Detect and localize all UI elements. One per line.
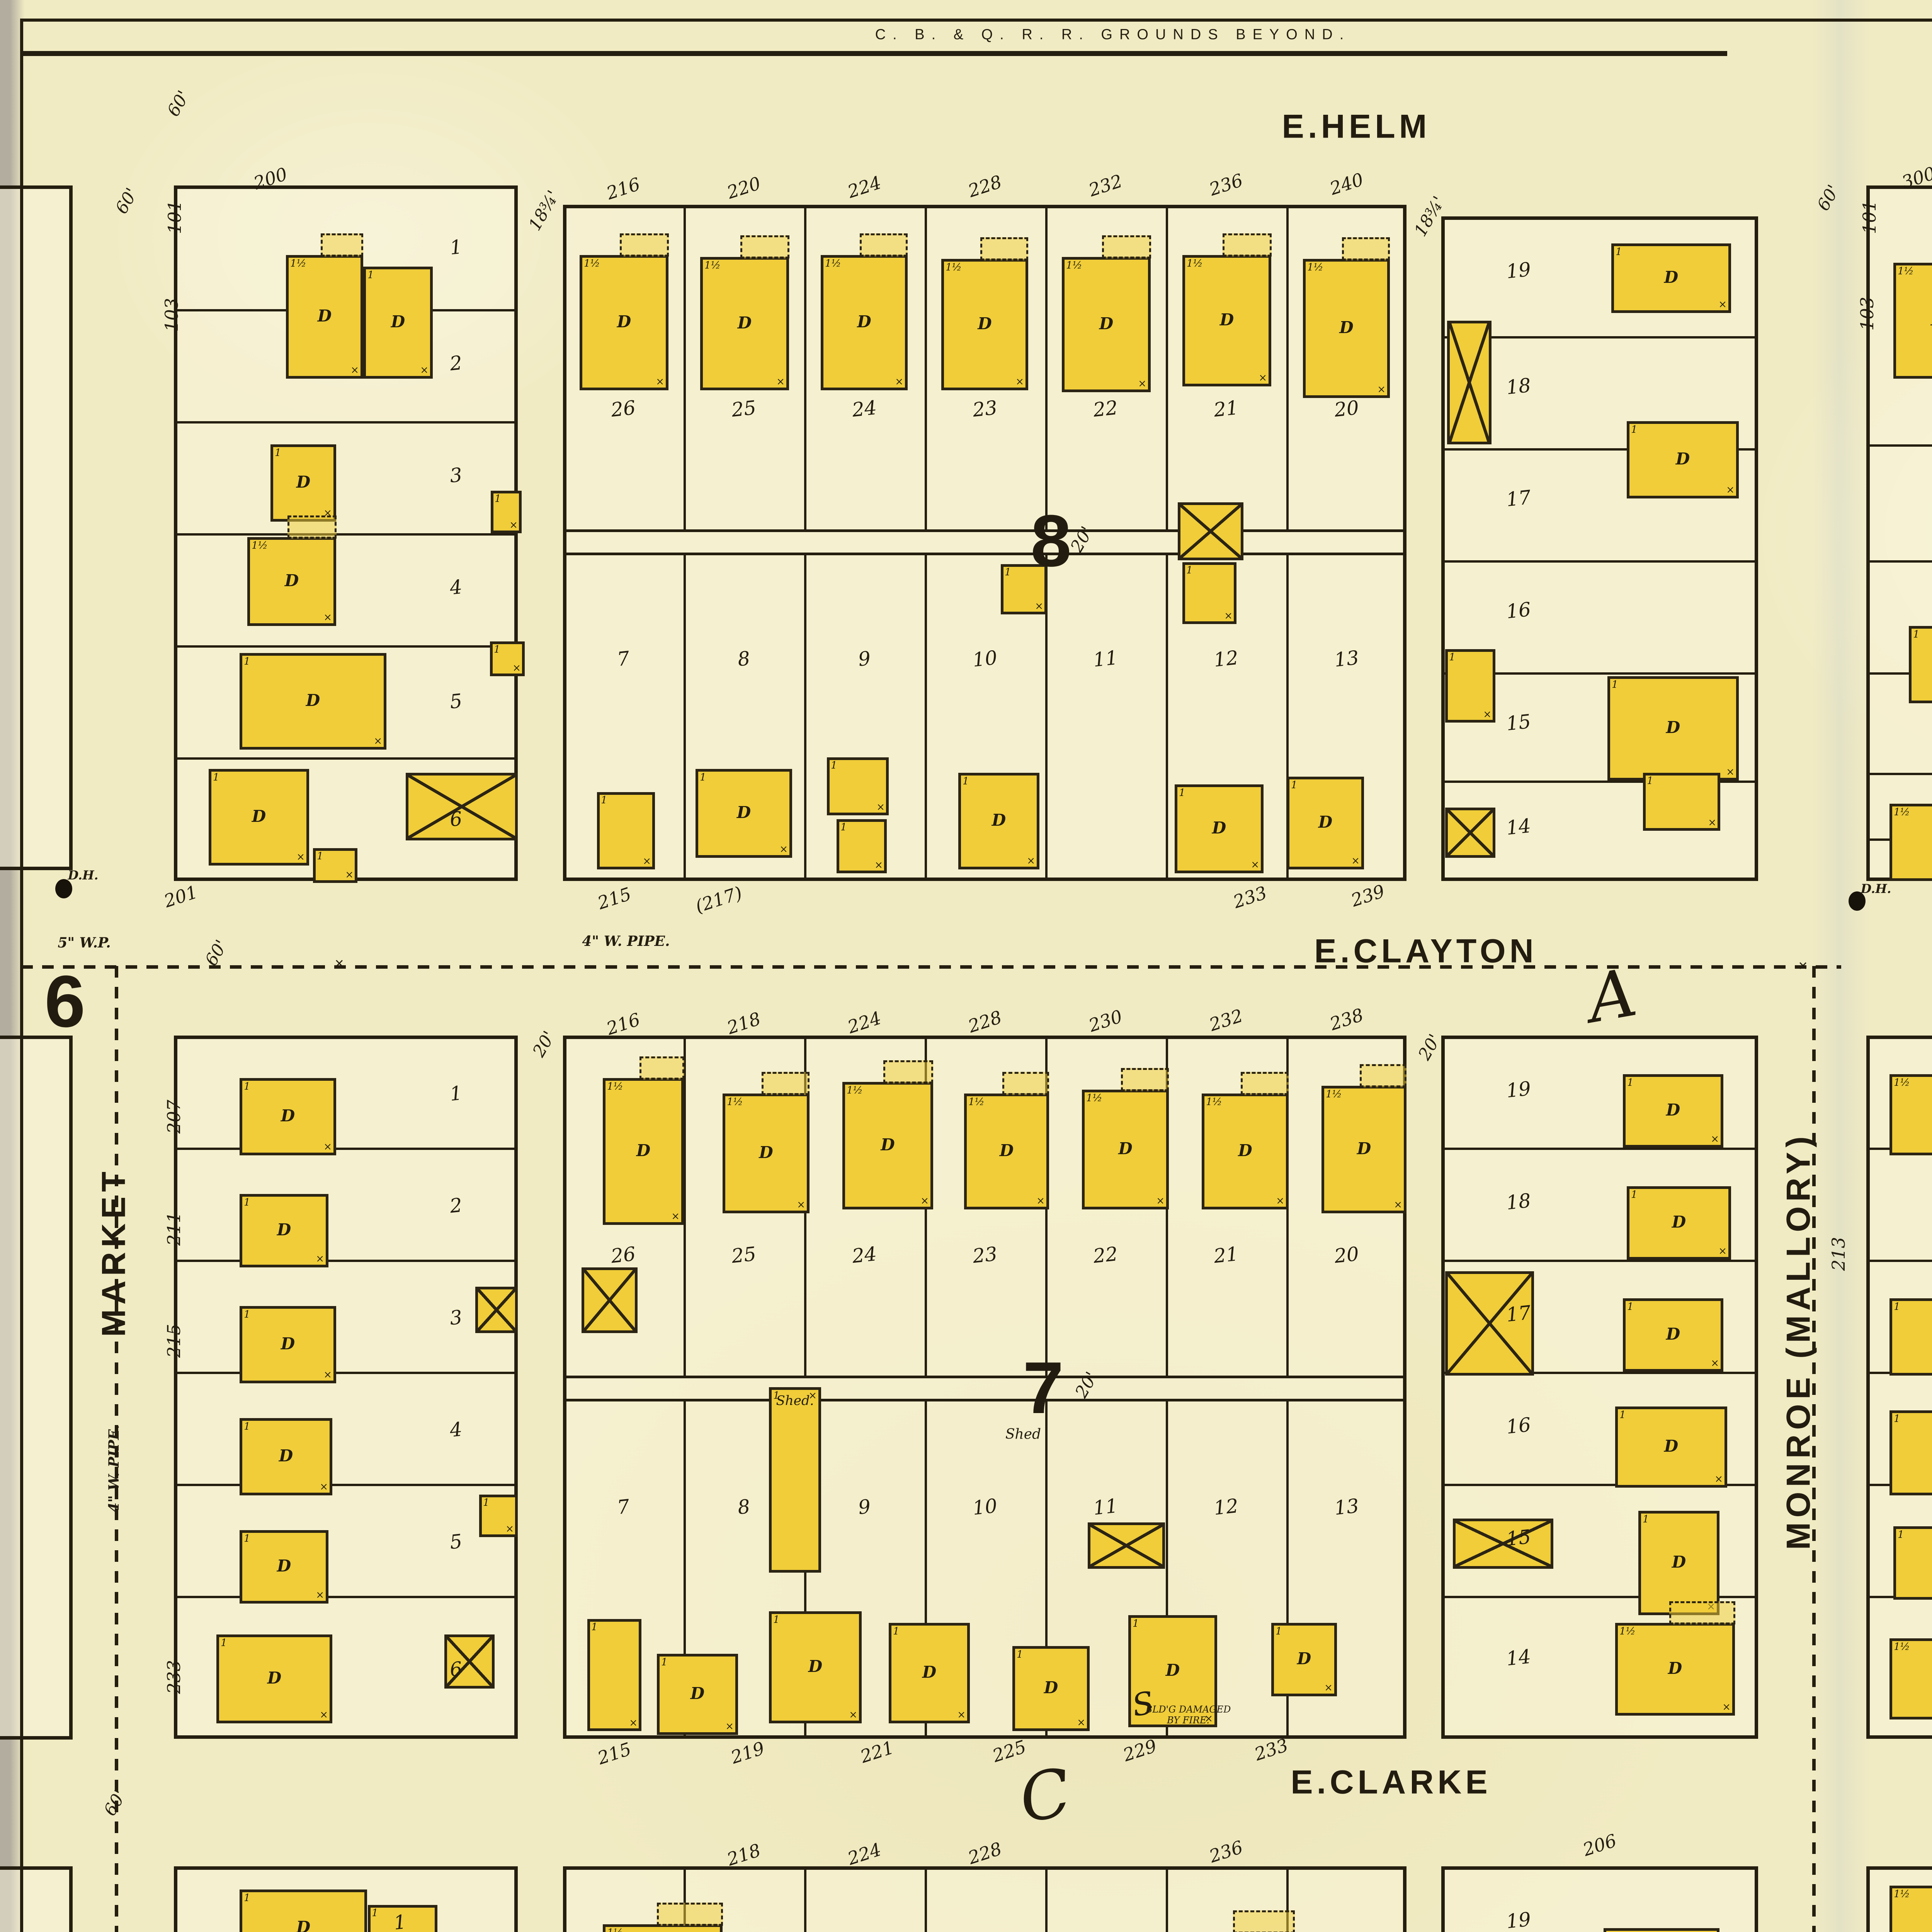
building-barn-crossed bbox=[582, 1267, 638, 1333]
building-dwelling: D1× bbox=[240, 653, 386, 750]
building-porch-outline bbox=[1233, 1910, 1295, 1932]
lot-number: 4 bbox=[449, 1418, 463, 1441]
building-dwelling: D1× bbox=[1271, 1623, 1337, 1696]
house-number: 206 bbox=[1580, 1830, 1619, 1860]
building-annotation: × bbox=[1251, 860, 1259, 870]
building-porch-outline bbox=[620, 233, 669, 257]
lot-line-horizontal bbox=[174, 421, 518, 423]
building-outbuilding: 1× bbox=[1445, 649, 1495, 723]
house-number: 224 bbox=[845, 1007, 884, 1037]
lot-line-horizontal bbox=[1866, 1260, 1932, 1262]
dwelling-label: D bbox=[737, 803, 751, 822]
building-outbuilding: 1× bbox=[837, 819, 887, 873]
building-porch-outline bbox=[1342, 237, 1390, 260]
lot-line-vertical bbox=[925, 205, 927, 529]
lot-number: 25 bbox=[730, 1243, 757, 1267]
building-porch-outline bbox=[1002, 1072, 1049, 1095]
lot-number: 5 bbox=[449, 689, 463, 713]
lot-line-horizontal bbox=[1441, 560, 1758, 563]
building-annotation: 1 bbox=[661, 1657, 668, 1667]
building-dwelling: D1½× bbox=[1182, 255, 1271, 386]
lot-number: 5 bbox=[449, 1530, 463, 1553]
house-number: 201 bbox=[162, 881, 200, 912]
lot-line-horizontal bbox=[174, 645, 518, 648]
sanborn-map-sheet: C. B. & Q. R. R. GROUNDS BEYOND. DEC. 19… bbox=[0, 0, 1932, 1932]
building-dwelling: D1× bbox=[1638, 1511, 1719, 1615]
building-annotation: 1 bbox=[700, 772, 706, 782]
lot-line-vertical bbox=[1166, 1866, 1168, 1932]
building-annotation: 1½ bbox=[946, 262, 962, 272]
building-annotation: 1 bbox=[1631, 1190, 1638, 1200]
dwelling-label: D bbox=[281, 1106, 295, 1125]
street-label: E.HELM bbox=[1282, 108, 1431, 146]
building-annotation: 1½ bbox=[584, 259, 600, 269]
building-annotation: × bbox=[920, 1196, 929, 1206]
building-dwelling: D1× bbox=[363, 267, 433, 379]
lot-number: 20 bbox=[1333, 1243, 1360, 1267]
building-annotation: 1½ bbox=[847, 1085, 863, 1095]
building-annotation: × bbox=[1718, 1246, 1727, 1256]
building-annotation: × bbox=[505, 1524, 514, 1534]
lot-number: 17 bbox=[1505, 1301, 1532, 1326]
lot-number: 17 bbox=[1505, 486, 1532, 511]
building-annotation: 1½ bbox=[1066, 260, 1082, 270]
building-annotation: × bbox=[849, 1710, 857, 1720]
building-barn-crossed bbox=[1088, 1522, 1165, 1569]
building-annotation: × bbox=[1726, 485, 1735, 495]
building-annotation: 1 bbox=[1898, 1530, 1904, 1540]
building-annotation: 1 bbox=[495, 494, 501, 504]
building-annotation: 1½ bbox=[1894, 1642, 1910, 1652]
building-annotation: 1 bbox=[601, 795, 607, 805]
dwelling-label: D bbox=[1318, 813, 1332, 832]
dwelling-label: D bbox=[267, 1668, 281, 1687]
building-annotation: × bbox=[1394, 1200, 1402, 1210]
house-number: 221 bbox=[858, 1737, 896, 1767]
house-number: 240 bbox=[1327, 169, 1366, 199]
building-annotation: 1 bbox=[963, 776, 969, 786]
building-outbuilding: 1× bbox=[1643, 773, 1720, 831]
building-outbuilding: 1× bbox=[490, 641, 525, 676]
building-annotation: 1 bbox=[1616, 247, 1622, 257]
building-annotation: 1 bbox=[1627, 1302, 1634, 1312]
lot-line-horizontal bbox=[21, 51, 1727, 56]
lot-number: 1 bbox=[393, 1910, 407, 1932]
building-annotation: × bbox=[1726, 767, 1735, 777]
lot-line-horizontal bbox=[174, 1148, 518, 1150]
building-annotation: 1 bbox=[244, 1534, 250, 1544]
building-dwelling: D1× bbox=[240, 1194, 328, 1267]
dwelling-label: D bbox=[922, 1663, 936, 1682]
lot-number: 19 bbox=[1505, 1908, 1532, 1932]
building-annotation: 1½ bbox=[1894, 807, 1910, 817]
water-pipe-label: 4" W. PIPE. bbox=[582, 933, 670, 949]
lot-number: 12 bbox=[1213, 646, 1239, 671]
building-dwelling: D1½× bbox=[842, 1082, 933, 1209]
building-annotation: × bbox=[320, 1482, 328, 1492]
dwelling-label: D bbox=[296, 1918, 310, 1932]
lot-number: 9 bbox=[857, 1495, 872, 1519]
building-annotation: × bbox=[316, 1254, 324, 1264]
building-annotation: × bbox=[808, 1391, 817, 1401]
house-number: 236 bbox=[1207, 170, 1245, 200]
lot-number: 6 bbox=[449, 807, 463, 831]
house-number: (217) bbox=[693, 882, 745, 917]
building-barn-crossed bbox=[1453, 1519, 1553, 1569]
house-number: 230 bbox=[1086, 1006, 1125, 1036]
building-dwelling: D1½× bbox=[286, 255, 363, 379]
building-dwelling: D1× bbox=[240, 1530, 328, 1604]
building-dwelling: D1× bbox=[1623, 1298, 1723, 1372]
building-dwelling: D1½× bbox=[964, 1094, 1049, 1209]
dwelling-label: D bbox=[1666, 1325, 1680, 1344]
lot-line-vertical bbox=[925, 553, 927, 881]
building-annotation: 1 bbox=[213, 772, 219, 782]
lot-line-vertical bbox=[1045, 1866, 1048, 1932]
dwelling-label: D bbox=[759, 1143, 773, 1162]
lot-line-horizontal bbox=[1441, 1148, 1758, 1150]
building-annotation: × bbox=[1714, 1474, 1723, 1484]
house-number: 101 bbox=[1859, 200, 1880, 234]
house-number: 224 bbox=[845, 1839, 884, 1869]
building-porch-outline bbox=[1102, 235, 1151, 259]
building-annotation: × bbox=[1711, 1134, 1719, 1144]
water-pipe-line bbox=[21, 965, 1841, 969]
lot-number: 21 bbox=[1213, 396, 1239, 421]
building-porch-outline bbox=[1121, 1068, 1169, 1091]
house-number: 216 bbox=[604, 173, 643, 204]
lot-number: 15 bbox=[1505, 710, 1532, 735]
building-dwelling: D1½× bbox=[1303, 259, 1390, 398]
lot-number: 8 bbox=[736, 1495, 751, 1519]
building-annotation: × bbox=[671, 1211, 680, 1221]
house-number: 219 bbox=[728, 1738, 767, 1768]
lot-number: 13 bbox=[1333, 646, 1360, 671]
building-porch-outline bbox=[1223, 233, 1272, 257]
building-dwelling: D1½× bbox=[1202, 1094, 1289, 1209]
house-number: 103 bbox=[161, 298, 182, 332]
building-annotation: 1 bbox=[1913, 629, 1920, 639]
building-annotation: × bbox=[374, 736, 382, 746]
hydrant-label: D.H. bbox=[68, 868, 98, 883]
building-dwelling: D1½× bbox=[580, 255, 668, 390]
script-letter: C bbox=[1014, 1754, 1077, 1838]
lot-number: 11 bbox=[1092, 646, 1119, 671]
building-annotation: 1½ bbox=[607, 1928, 623, 1932]
dwelling-label: D bbox=[1118, 1139, 1132, 1158]
building-annotation: × bbox=[1077, 1718, 1085, 1728]
lot-line-vertical bbox=[684, 205, 686, 529]
building-annotation: × bbox=[1324, 1683, 1333, 1693]
building-annotation: × bbox=[1138, 379, 1146, 389]
building-annotation: 1 bbox=[483, 1498, 490, 1508]
fire-damage-note: BY FIRE. bbox=[1167, 1715, 1209, 1726]
dwelling-label: D bbox=[1676, 449, 1690, 468]
building-annotation: 1 bbox=[1631, 425, 1638, 435]
building-annotation: × bbox=[345, 870, 354, 880]
building-annotation: × bbox=[512, 663, 521, 673]
dwelling-label: D bbox=[992, 811, 1006, 830]
building-dwelling: D1× bbox=[1611, 243, 1731, 313]
block-number: 6 bbox=[44, 959, 85, 1044]
building-annotation: 1½ bbox=[1619, 1626, 1636, 1636]
street-width-label: 60' bbox=[201, 937, 231, 969]
building-annotation: 1½ bbox=[1894, 1078, 1910, 1088]
lot-number: 1 bbox=[449, 1082, 463, 1105]
building-annotation: 1 bbox=[831, 760, 837, 770]
building-outbuilding: 1× bbox=[597, 792, 655, 869]
block-number: 7 bbox=[1023, 1346, 1064, 1430]
building-outbuilding: 1× bbox=[491, 491, 522, 533]
lot-line-horizontal bbox=[21, 19, 1932, 22]
lot-number: 19 bbox=[1505, 1077, 1532, 1102]
building-annotation: 1½ bbox=[1187, 259, 1203, 269]
dwelling-label: D bbox=[1044, 1678, 1058, 1697]
house-number: 228 bbox=[966, 1007, 1004, 1037]
building-dwelling: D1× bbox=[1604, 1928, 1719, 1932]
building-dwelling: D1× bbox=[889, 1623, 970, 1723]
water-pipe-label: 5" W.P. bbox=[58, 935, 111, 951]
building-annotation: × bbox=[1156, 1196, 1165, 1206]
lot-line-horizontal bbox=[174, 1260, 518, 1262]
house-number: 228 bbox=[966, 1838, 1004, 1868]
building-dwelling: D1½× bbox=[1321, 1086, 1406, 1213]
house-number: 233 bbox=[1252, 1735, 1291, 1765]
building-annotation: 1 bbox=[1276, 1626, 1282, 1636]
street-width-label: 18¾' bbox=[525, 187, 563, 234]
building-annotation: 1 bbox=[244, 1893, 250, 1903]
building-annotation: 1½ bbox=[607, 1082, 623, 1092]
building-annotation: 1½ bbox=[1326, 1089, 1342, 1099]
building-annotation: 1 bbox=[1627, 1078, 1634, 1088]
building-annotation: × bbox=[957, 1710, 966, 1720]
building-porch-outline bbox=[860, 233, 908, 257]
house-number: 211 bbox=[163, 1212, 184, 1246]
building-annotation: × bbox=[643, 856, 651, 866]
dwelling-label: D bbox=[1339, 318, 1353, 337]
building-porch-outline bbox=[1241, 1072, 1289, 1095]
water-pipe-label: 4" W. PIPE. bbox=[106, 1424, 122, 1512]
building-porch-outline bbox=[1360, 1064, 1406, 1087]
lot-number: 23 bbox=[971, 1243, 998, 1267]
building-annotation: × bbox=[1718, 299, 1727, 310]
lot-number: 14 bbox=[1505, 1645, 1532, 1670]
building-dwelling: D1× bbox=[696, 769, 792, 858]
building-annotation: 1½ bbox=[1086, 1093, 1102, 1103]
dwelling-label: D bbox=[1099, 314, 1113, 333]
building-annotation: × bbox=[420, 365, 429, 375]
lot-line-vertical bbox=[804, 1866, 806, 1932]
dwelling-label: D bbox=[1664, 1437, 1678, 1456]
building-dwelling: D1½× bbox=[1062, 257, 1151, 392]
dwelling-label: D bbox=[1668, 1659, 1682, 1678]
lot-line-horizontal bbox=[174, 1372, 518, 1374]
dwelling-label: D bbox=[808, 1657, 822, 1676]
building-dwelling: D1½× bbox=[1615, 1623, 1735, 1716]
building-annotation: 1 bbox=[1005, 567, 1011, 577]
dwelling-label: D bbox=[1672, 1553, 1686, 1571]
building-annotation: 1 bbox=[773, 1615, 780, 1625]
building-annotation: × bbox=[629, 1718, 638, 1728]
lot-number: 10 bbox=[971, 646, 998, 671]
building-barn-crossed bbox=[1445, 808, 1495, 858]
lot-number: 6 bbox=[449, 1657, 463, 1681]
building-annotation: 1½ bbox=[1898, 266, 1914, 276]
building-annotation: 1 bbox=[244, 1082, 250, 1092]
building-dwelling: D1× bbox=[769, 1611, 862, 1723]
building-annotation: 1 bbox=[1894, 1414, 1900, 1424]
lot-line-vertical bbox=[20, 19, 23, 1932]
block-number: 8 bbox=[1031, 499, 1071, 583]
building-annotation: 1 bbox=[221, 1638, 227, 1648]
house-number: 216 bbox=[604, 1009, 643, 1039]
street-label: MARKET bbox=[95, 1167, 133, 1337]
lot-line-vertical bbox=[1166, 205, 1168, 529]
lot-number: 16 bbox=[1505, 598, 1532, 623]
lot-line-horizontal bbox=[1866, 773, 1932, 775]
lot-number: 3 bbox=[449, 1306, 463, 1329]
building-barn-crossed bbox=[406, 773, 518, 840]
street-width-label: 20' bbox=[1415, 1031, 1445, 1063]
building-dwelling: D1× bbox=[1012, 1646, 1090, 1731]
building-dwelling: D1× bbox=[240, 1889, 367, 1932]
building-shed: Shed.1× bbox=[769, 1387, 821, 1573]
building-annotation: 1 bbox=[1647, 776, 1653, 786]
building-annotation: 1 bbox=[244, 1422, 250, 1432]
building-annotation: 1½ bbox=[825, 259, 841, 269]
house-number: 215 bbox=[595, 1738, 634, 1769]
lot-number: 26 bbox=[610, 1243, 636, 1267]
lot-number: 20 bbox=[1333, 396, 1360, 421]
dwelling-label: D bbox=[881, 1135, 895, 1154]
building-annotation: 1 bbox=[591, 1622, 598, 1632]
building-annotation: × bbox=[1483, 709, 1492, 719]
street-width-label: 20' bbox=[529, 1028, 559, 1060]
building-annotation: 1 bbox=[1133, 1619, 1139, 1629]
building-barn-crossed bbox=[1447, 321, 1492, 444]
building-annotation: × bbox=[797, 1200, 805, 1210]
dwelling-label: D bbox=[1672, 1213, 1686, 1231]
building-dwelling: D1½× bbox=[1889, 1074, 1932, 1155]
building-annotation: 1½ bbox=[1206, 1097, 1222, 1107]
building-dwelling: D1× bbox=[240, 1306, 336, 1383]
dwelling-label: D bbox=[277, 1220, 291, 1239]
lot-number: 13 bbox=[1333, 1495, 1360, 1519]
lot-line-horizontal bbox=[1866, 560, 1932, 563]
shed-label: Shed bbox=[1005, 1427, 1041, 1442]
lot-number: 14 bbox=[1505, 815, 1532, 839]
dwelling-label: D bbox=[281, 1334, 295, 1353]
building-annotation: × bbox=[725, 1721, 734, 1731]
building-annotation: 1 bbox=[244, 1197, 250, 1207]
building-annotation: × bbox=[320, 1710, 328, 1720]
lot-line-horizontal bbox=[563, 553, 1406, 555]
building-dwelling: D1½× bbox=[723, 1094, 810, 1213]
building-dwelling: D1× bbox=[1893, 1526, 1932, 1600]
dwelling-label: D bbox=[1238, 1141, 1252, 1160]
building-porch-outline bbox=[1669, 1601, 1735, 1624]
lot-line-horizontal bbox=[174, 1484, 518, 1486]
building-dwelling: D1× bbox=[1627, 1186, 1731, 1260]
building-annotation: × bbox=[874, 860, 883, 870]
building-dwelling: D1½× bbox=[1082, 1090, 1169, 1209]
street-width-label: 60' bbox=[163, 87, 194, 120]
building-annotation: × bbox=[323, 1370, 332, 1380]
building-dwelling: D1× bbox=[657, 1654, 738, 1735]
building-annotation: × bbox=[1276, 1196, 1284, 1206]
house-number: 220 bbox=[724, 173, 763, 203]
building-dwelling: D1× bbox=[240, 1078, 336, 1155]
building-outbuilding: 1× bbox=[827, 757, 889, 815]
block-outline bbox=[0, 1036, 73, 1740]
dwelling-label: D bbox=[1212, 818, 1226, 837]
building-dwelling: D1× bbox=[1889, 1410, 1932, 1495]
lot-number: 21 bbox=[1213, 1243, 1239, 1267]
block-outline bbox=[174, 1036, 518, 1739]
dwelling-label: D bbox=[738, 313, 752, 332]
building-annotation: 1 bbox=[317, 851, 323, 861]
street-label: E.CLAYTON bbox=[1314, 932, 1537, 971]
street-label: MONROE (MALLORY) bbox=[1780, 1132, 1818, 1550]
building-barn-crossed bbox=[1178, 502, 1243, 560]
building-dwelling: D1½× bbox=[247, 537, 336, 626]
dwelling-label: D bbox=[857, 312, 871, 331]
building-annotation: × bbox=[895, 377, 903, 387]
building-annotation: 1½ bbox=[1894, 1889, 1910, 1899]
building-porch-outline bbox=[639, 1056, 684, 1080]
building-dwelling: D1× bbox=[1627, 421, 1739, 498]
fire-damage-note: BLD'G DAMAGED bbox=[1146, 1704, 1231, 1715]
building-dwelling: D1× bbox=[1623, 1074, 1723, 1148]
building-porch-outline bbox=[287, 515, 337, 539]
valve-mark: × bbox=[335, 955, 344, 973]
dwelling-label: D bbox=[636, 1141, 650, 1160]
dwelling-label: D bbox=[1166, 1661, 1180, 1680]
lot-number: 18 bbox=[1505, 374, 1532, 399]
building-dwelling: D1× bbox=[216, 1634, 332, 1723]
lot-number: 16 bbox=[1505, 1413, 1532, 1438]
dwelling-label: D bbox=[690, 1684, 704, 1703]
street-width-label: 60' bbox=[112, 185, 142, 217]
building-porch-outline bbox=[762, 1072, 810, 1095]
block-outline bbox=[0, 185, 73, 870]
building-annotation: 1 bbox=[1291, 780, 1298, 790]
building-annotation: × bbox=[1708, 818, 1716, 828]
railroad-note: C. B. & Q. R. R. GROUNDS BEYOND. bbox=[875, 27, 1351, 43]
building-annotation: 1 bbox=[372, 1908, 378, 1918]
house-number: 239 bbox=[1349, 881, 1387, 911]
street-width-label: 60' bbox=[100, 1787, 130, 1819]
building-annotation: 1 bbox=[244, 656, 250, 667]
building-annotation: 1 bbox=[773, 1391, 780, 1401]
lot-number: 26 bbox=[610, 396, 636, 421]
building-dwelling: D1× bbox=[1607, 676, 1739, 781]
lot-line-horizontal bbox=[174, 757, 518, 760]
building-porch-outline bbox=[657, 1903, 723, 1926]
building-porch-outline bbox=[980, 237, 1028, 260]
building-annotation: × bbox=[350, 365, 359, 375]
lot-number: 10 bbox=[971, 1495, 998, 1519]
house-number: 101 bbox=[164, 200, 185, 234]
building-annotation: 1 bbox=[1894, 1302, 1900, 1312]
building-annotation: × bbox=[1351, 856, 1360, 866]
house-number: 232 bbox=[1086, 170, 1125, 201]
building-barn-crossed bbox=[475, 1287, 518, 1333]
lot-number: 2 bbox=[449, 1194, 463, 1217]
building-outbuilding: 1× bbox=[587, 1619, 641, 1731]
lot-line-vertical bbox=[1166, 553, 1168, 881]
lot-number: 7 bbox=[616, 647, 631, 670]
